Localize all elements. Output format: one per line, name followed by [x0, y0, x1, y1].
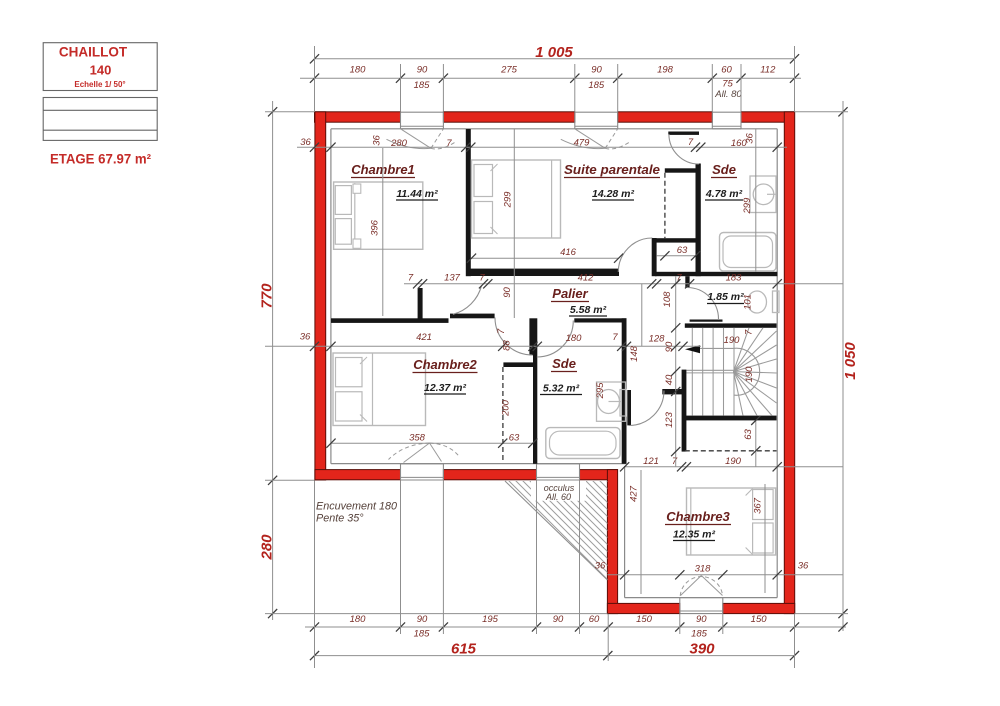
- svg-text:396: 396: [370, 219, 381, 236]
- svg-text:299: 299: [742, 197, 753, 215]
- svg-text:1 005: 1 005: [535, 44, 573, 61]
- svg-text:1.85 m²: 1.85 m²: [707, 291, 744, 303]
- svg-text:5.32 m²: 5.32 m²: [543, 383, 580, 395]
- svg-text:36: 36: [595, 561, 606, 572]
- svg-text:36: 36: [798, 561, 809, 572]
- svg-text:Encuvement 180: Encuvement 180: [316, 501, 397, 513]
- svg-text:36: 36: [300, 137, 311, 148]
- svg-text:280: 280: [390, 138, 408, 149]
- svg-text:60: 60: [589, 614, 600, 625]
- svg-text:63: 63: [677, 245, 688, 256]
- svg-text:11.44 m²: 11.44 m²: [396, 188, 438, 200]
- svg-text:36: 36: [745, 133, 756, 144]
- svg-text:5.58 m²: 5.58 m²: [570, 304, 607, 316]
- svg-text:198: 198: [657, 65, 674, 76]
- svg-text:ETAGE 67.97 m²: ETAGE 67.97 m²: [50, 151, 151, 167]
- svg-text:7: 7: [408, 273, 414, 284]
- svg-text:90: 90: [591, 65, 602, 76]
- svg-text:1 050: 1 050: [842, 342, 859, 380]
- svg-text:CHAILLOT: CHAILLOT: [59, 45, 128, 60]
- svg-text:615: 615: [451, 641, 477, 658]
- svg-text:40: 40: [664, 374, 675, 385]
- svg-text:All. 60: All. 60: [545, 492, 571, 502]
- svg-text:180: 180: [350, 614, 367, 625]
- svg-text:121: 121: [643, 456, 659, 467]
- svg-text:367: 367: [753, 497, 764, 514]
- svg-text:190: 190: [744, 366, 755, 383]
- svg-text:275: 275: [500, 65, 518, 76]
- svg-text:180: 180: [566, 333, 583, 344]
- svg-text:Pente 35°: Pente 35°: [316, 513, 364, 525]
- svg-text:7: 7: [612, 332, 618, 343]
- svg-text:Echelle 1/ 50°: Echelle 1/ 50°: [74, 80, 125, 89]
- svg-text:280: 280: [259, 534, 276, 561]
- svg-text:183: 183: [726, 273, 743, 284]
- svg-text:36: 36: [300, 332, 311, 343]
- svg-text:14.28 m²: 14.28 m²: [592, 188, 635, 200]
- svg-text:195: 195: [482, 614, 499, 625]
- svg-text:148: 148: [629, 345, 640, 362]
- svg-text:Sde: Sde: [712, 162, 736, 177]
- svg-text:150: 150: [636, 614, 653, 625]
- svg-text:190: 190: [724, 335, 741, 346]
- svg-text:Chambre2: Chambre2: [413, 357, 477, 372]
- svg-text:295: 295: [595, 382, 606, 400]
- svg-text:137: 137: [444, 273, 461, 284]
- svg-text:90: 90: [553, 614, 564, 625]
- svg-text:185: 185: [414, 629, 431, 640]
- svg-text:358: 358: [409, 433, 426, 444]
- svg-text:7: 7: [496, 328, 507, 334]
- svg-text:12.35 m²: 12.35 m²: [673, 529, 716, 541]
- svg-text:4.78 m²: 4.78 m²: [705, 188, 743, 200]
- svg-text:90: 90: [696, 614, 707, 625]
- svg-text:128: 128: [649, 334, 666, 345]
- svg-text:185: 185: [414, 80, 431, 91]
- svg-text:770: 770: [259, 283, 276, 309]
- svg-text:All. 80: All. 80: [714, 89, 742, 100]
- svg-text:200: 200: [501, 399, 512, 417]
- svg-text:479: 479: [574, 138, 591, 149]
- svg-text:90: 90: [502, 287, 513, 298]
- svg-text:123: 123: [664, 411, 675, 428]
- svg-text:299: 299: [503, 191, 514, 209]
- svg-text:60: 60: [721, 65, 732, 76]
- svg-text:390: 390: [689, 641, 715, 658]
- svg-text:36: 36: [372, 135, 383, 146]
- svg-text:90: 90: [664, 341, 675, 352]
- svg-text:318: 318: [695, 564, 712, 575]
- svg-text:421: 421: [416, 332, 432, 343]
- svg-text:75: 75: [722, 79, 733, 90]
- svg-text:90: 90: [417, 65, 428, 76]
- svg-text:7: 7: [446, 138, 452, 149]
- svg-text:7: 7: [672, 456, 678, 467]
- svg-text:12.37 m²: 12.37 m²: [424, 382, 467, 394]
- svg-text:185: 185: [691, 629, 708, 640]
- svg-text:7: 7: [744, 329, 755, 335]
- svg-text:112: 112: [760, 65, 776, 76]
- svg-text:90: 90: [417, 614, 428, 625]
- svg-text:88: 88: [502, 340, 513, 351]
- svg-text:Suite parentale: Suite parentale: [564, 162, 660, 177]
- svg-text:Palier: Palier: [552, 286, 588, 301]
- svg-text:63: 63: [743, 429, 754, 440]
- svg-text:Chambre3: Chambre3: [666, 509, 730, 524]
- svg-text:190: 190: [725, 456, 742, 467]
- svg-text:63: 63: [509, 433, 520, 444]
- svg-text:412: 412: [578, 273, 595, 284]
- svg-text:Sde: Sde: [552, 356, 576, 371]
- svg-text:416: 416: [560, 247, 577, 258]
- svg-text:7: 7: [479, 273, 485, 284]
- svg-text:180: 180: [350, 65, 367, 76]
- svg-text:150: 150: [751, 614, 768, 625]
- svg-text:101: 101: [743, 294, 754, 310]
- svg-text:140: 140: [90, 63, 112, 78]
- svg-text:427: 427: [629, 485, 640, 502]
- svg-text:7: 7: [688, 137, 694, 148]
- svg-text:185: 185: [588, 80, 605, 91]
- svg-text:108: 108: [662, 291, 673, 308]
